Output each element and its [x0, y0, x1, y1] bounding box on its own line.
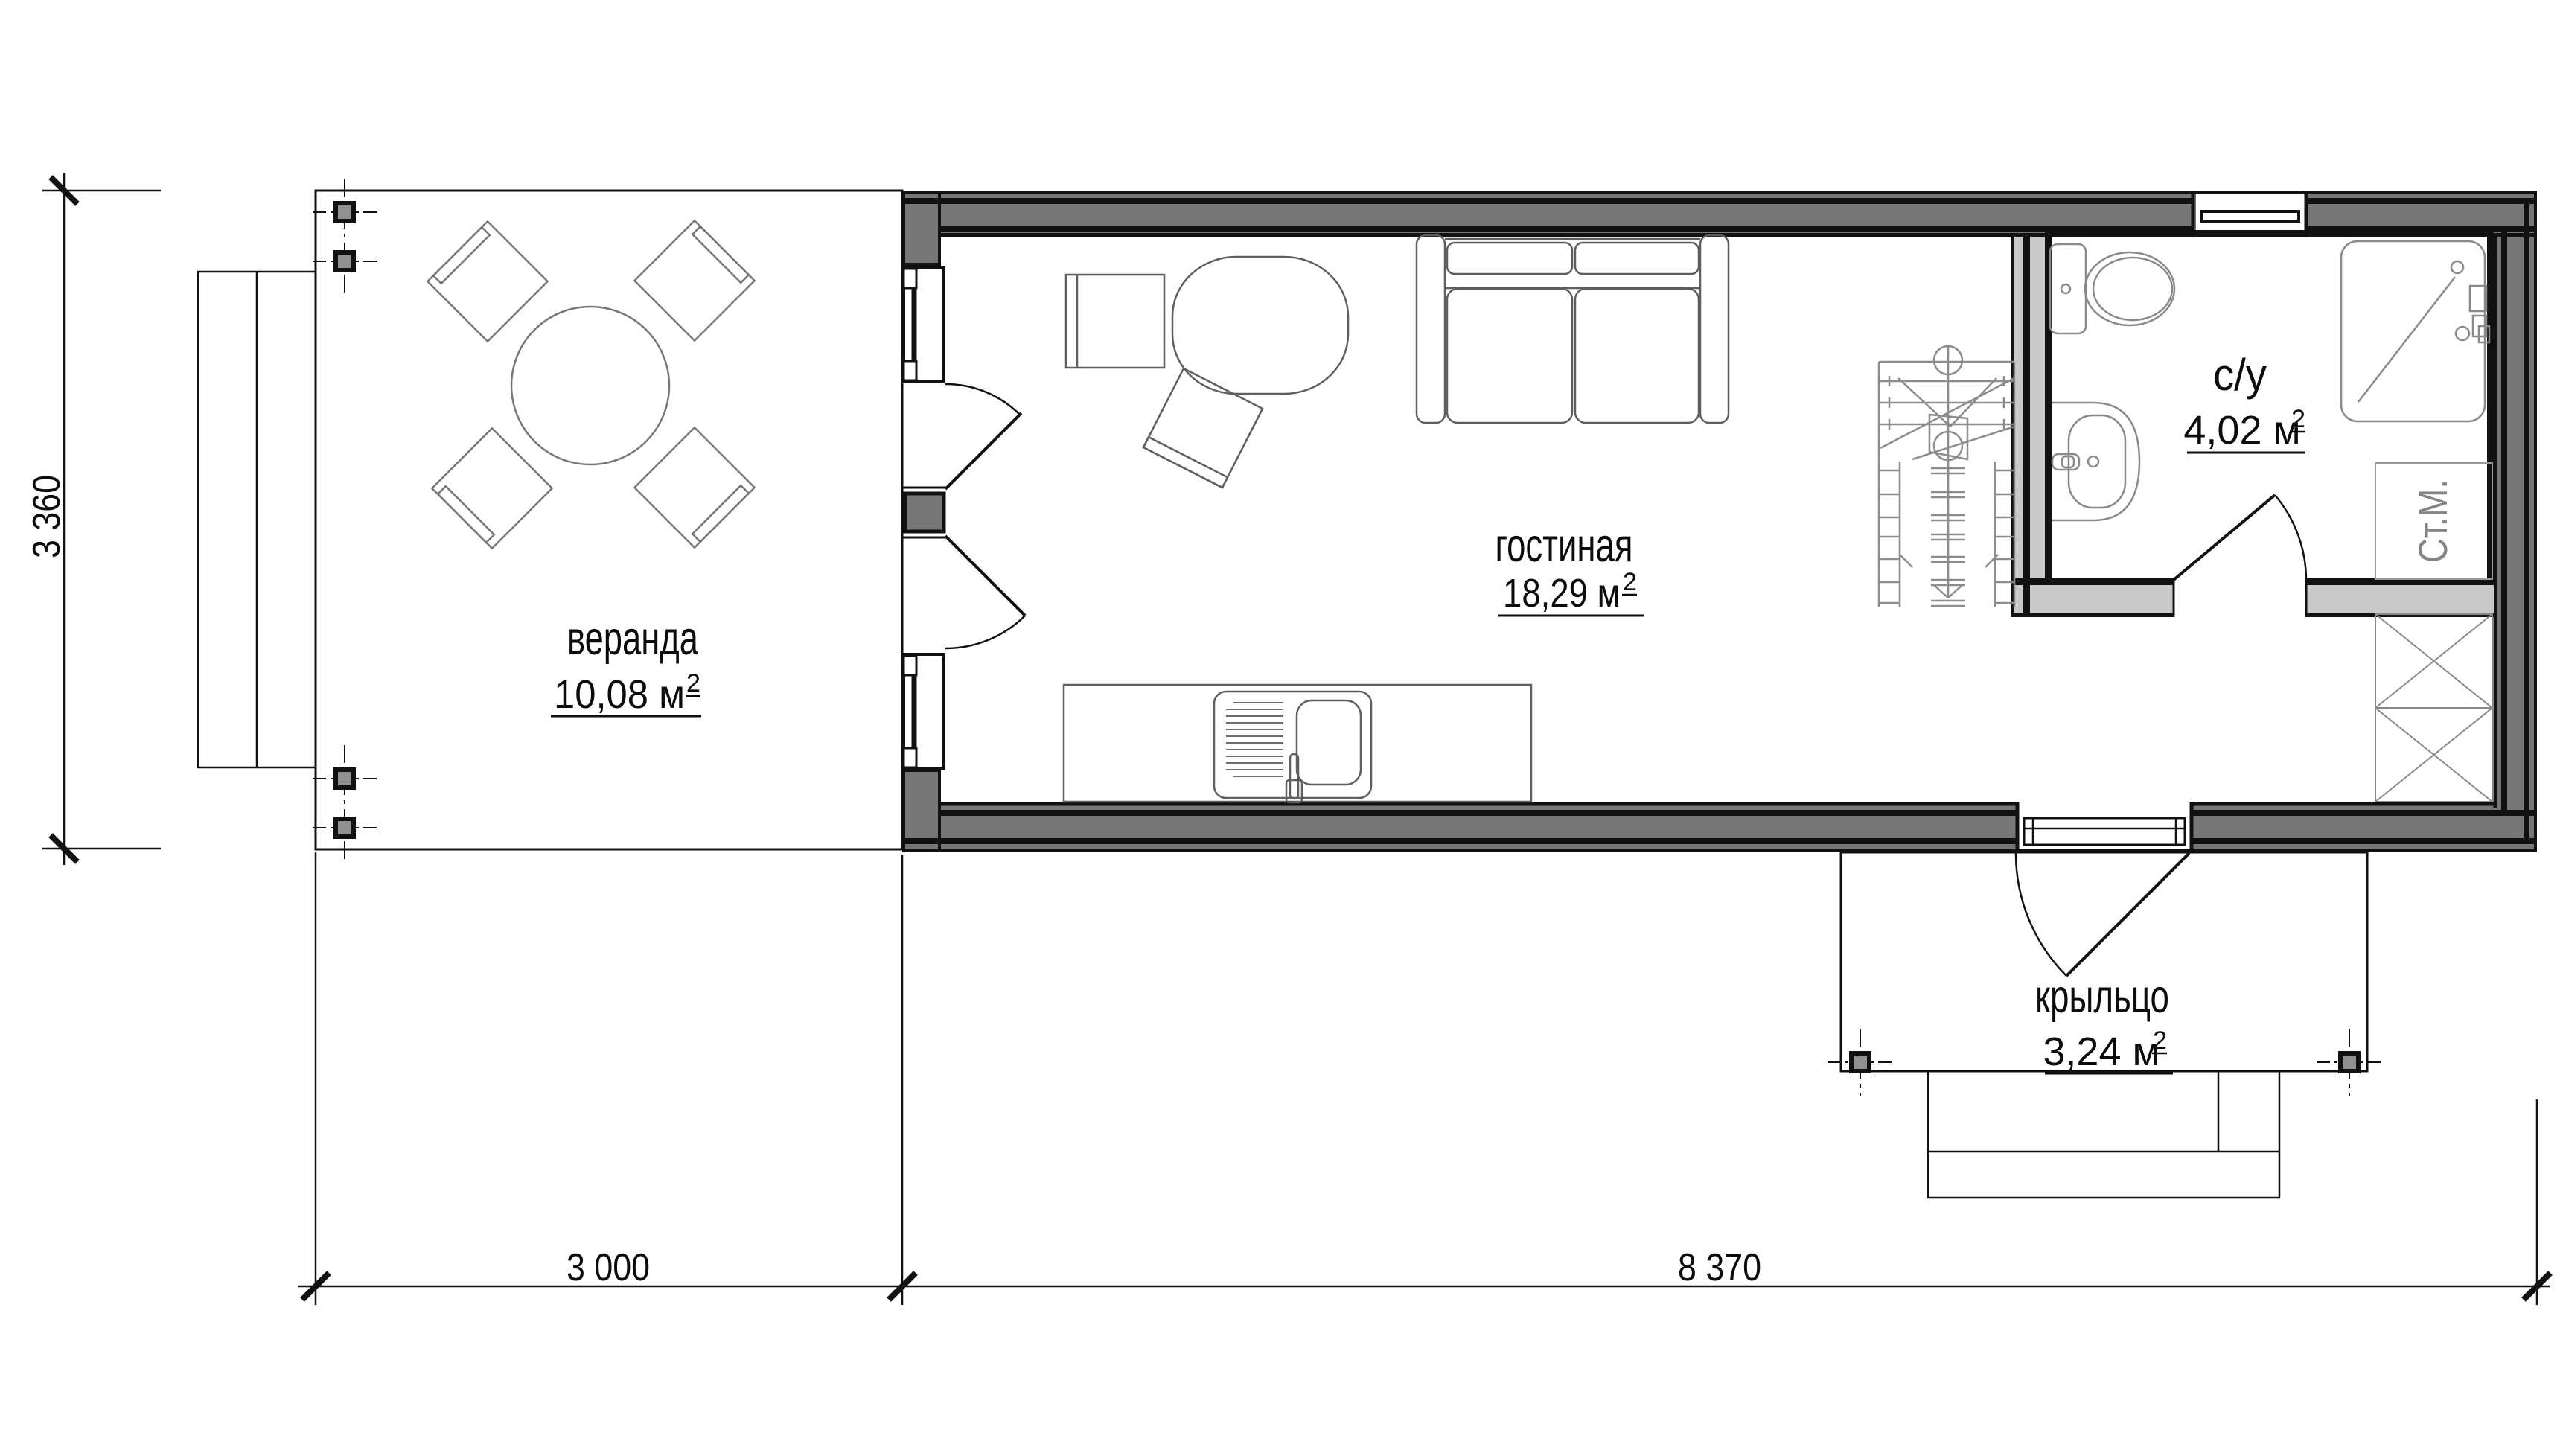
svg-text:3 000: 3 000 — [566, 1246, 650, 1289]
svg-text:веранда: веранда — [567, 613, 699, 665]
svg-text:4,02 м: 4,02 м — [2183, 408, 2300, 453]
svg-text:2: 2 — [1623, 568, 1637, 596]
svg-text:3 360: 3 360 — [25, 475, 68, 558]
svg-text:2: 2 — [2153, 1026, 2167, 1055]
svg-text:10,08 м: 10,08 м — [554, 672, 685, 717]
svg-text:3,24 м: 3,24 м — [2043, 1029, 2160, 1074]
svg-text:с/у: с/у — [2213, 350, 2267, 400]
svg-text:8 370: 8 370 — [1678, 1246, 1761, 1289]
svg-text:2: 2 — [2291, 405, 2305, 433]
svg-text:2: 2 — [686, 669, 700, 697]
svg-text:Ст.М.: Ст.М. — [2410, 479, 2456, 563]
svg-text:18,29 м: 18,29 м — [1503, 571, 1621, 616]
svg-text:крыльцо: крыльцо — [2035, 971, 2169, 1023]
svg-text:гостиная: гостиная — [1496, 520, 1633, 572]
